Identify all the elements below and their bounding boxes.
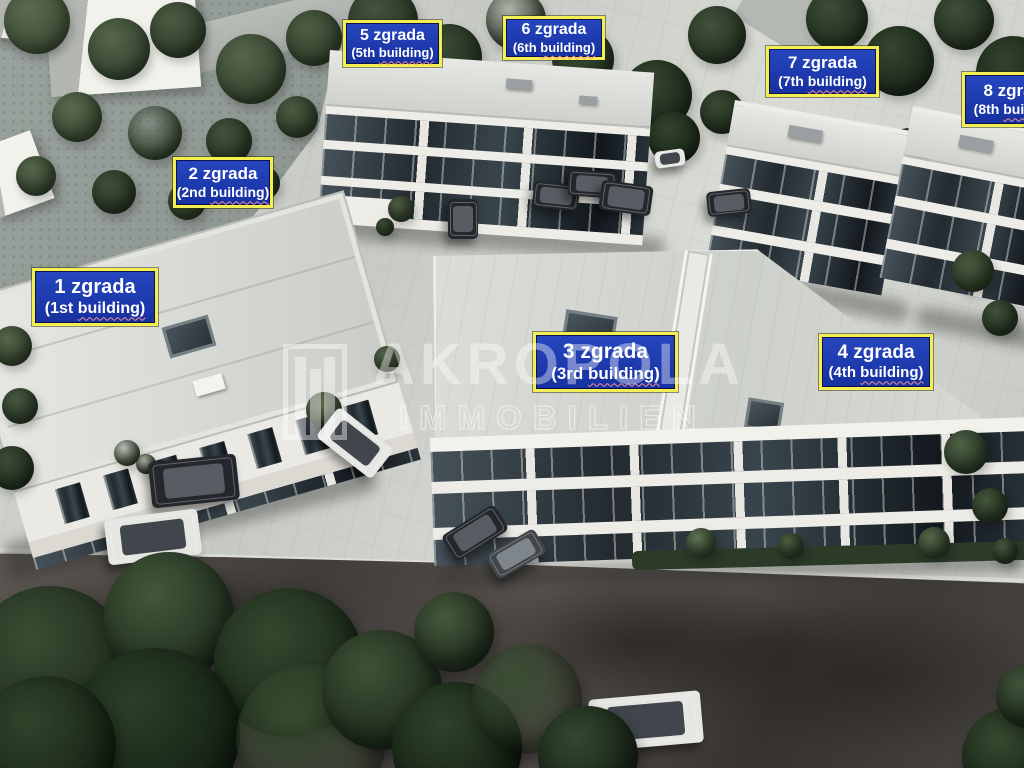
roof-vent bbox=[192, 373, 225, 397]
aerial-render: AKROPOLA IMMOBILIEN 1 zgrada (1st buildi… bbox=[0, 0, 1024, 768]
tree bbox=[414, 592, 494, 672]
tree bbox=[128, 106, 182, 160]
building-label-3: 3 zgrada (3rd building) bbox=[533, 332, 678, 392]
label-line2: (7th building) bbox=[778, 73, 867, 90]
tree bbox=[92, 170, 136, 214]
building-label-6: 6 zgrada (6th building) bbox=[503, 16, 605, 60]
car bbox=[148, 454, 240, 509]
label-line1: 4 zgrada bbox=[837, 341, 914, 364]
label-line2: (2nd building) bbox=[177, 184, 270, 201]
palm-tree bbox=[952, 250, 994, 292]
tree bbox=[88, 18, 150, 80]
building-label-8: 8 zgrada (8th building) bbox=[962, 72, 1024, 127]
label-line2: (8th building) bbox=[974, 101, 1024, 118]
building-label-4: 4 zgrada (4th building) bbox=[819, 334, 933, 390]
label-line2: (6th building) bbox=[513, 40, 595, 56]
roof-skylight bbox=[162, 315, 217, 359]
hedge-plant bbox=[778, 533, 804, 559]
tree bbox=[216, 34, 286, 104]
tree bbox=[150, 2, 206, 58]
tree bbox=[934, 0, 994, 50]
tree bbox=[52, 92, 102, 142]
window bbox=[247, 427, 282, 469]
hedge-plant bbox=[686, 528, 716, 558]
palm-tree bbox=[982, 300, 1018, 336]
plaza-plant bbox=[388, 196, 414, 222]
window bbox=[55, 482, 90, 524]
building-label-1: 1 zgrada (1st building) bbox=[32, 268, 158, 326]
label-line1: 1 zgrada bbox=[54, 275, 135, 299]
roof-vent bbox=[506, 78, 533, 90]
tree bbox=[16, 156, 56, 196]
palm-tree bbox=[944, 430, 988, 474]
label-line1: 8 zgrada bbox=[984, 81, 1024, 102]
label-line2: (3rd building) bbox=[551, 364, 660, 385]
roof-vent bbox=[579, 96, 598, 105]
building-5-6 bbox=[317, 50, 654, 258]
label-line1: 3 zgrada bbox=[563, 339, 648, 365]
building-label-5: 5 zgrada (5th building) bbox=[343, 20, 442, 67]
hedge-plant bbox=[992, 538, 1018, 564]
building-label-2: 2 zgrada (2nd building) bbox=[173, 157, 273, 208]
tree bbox=[276, 96, 318, 138]
car bbox=[448, 199, 478, 239]
plaza-plant bbox=[376, 218, 394, 236]
building-label-7: 7 zgrada (7th building) bbox=[766, 46, 879, 97]
label-line2: (4th building) bbox=[829, 364, 924, 382]
label-line1: 2 zgrada bbox=[189, 164, 258, 185]
roof-vent bbox=[787, 125, 823, 143]
roof-vent bbox=[958, 135, 994, 153]
label-line1: 7 zgrada bbox=[788, 53, 857, 74]
hedge-plant bbox=[918, 527, 950, 559]
window bbox=[103, 469, 138, 511]
label-line1: 6 zgrada bbox=[522, 20, 587, 40]
tree bbox=[688, 6, 746, 64]
plaza-plant bbox=[374, 346, 400, 372]
shrub bbox=[2, 388, 38, 424]
label-line1: 5 zgrada bbox=[360, 26, 425, 46]
label-line2: (1st building) bbox=[45, 299, 145, 319]
label-line2: (5th building) bbox=[351, 45, 433, 61]
car bbox=[654, 148, 686, 169]
car bbox=[706, 188, 752, 217]
palm-tree bbox=[972, 488, 1008, 524]
